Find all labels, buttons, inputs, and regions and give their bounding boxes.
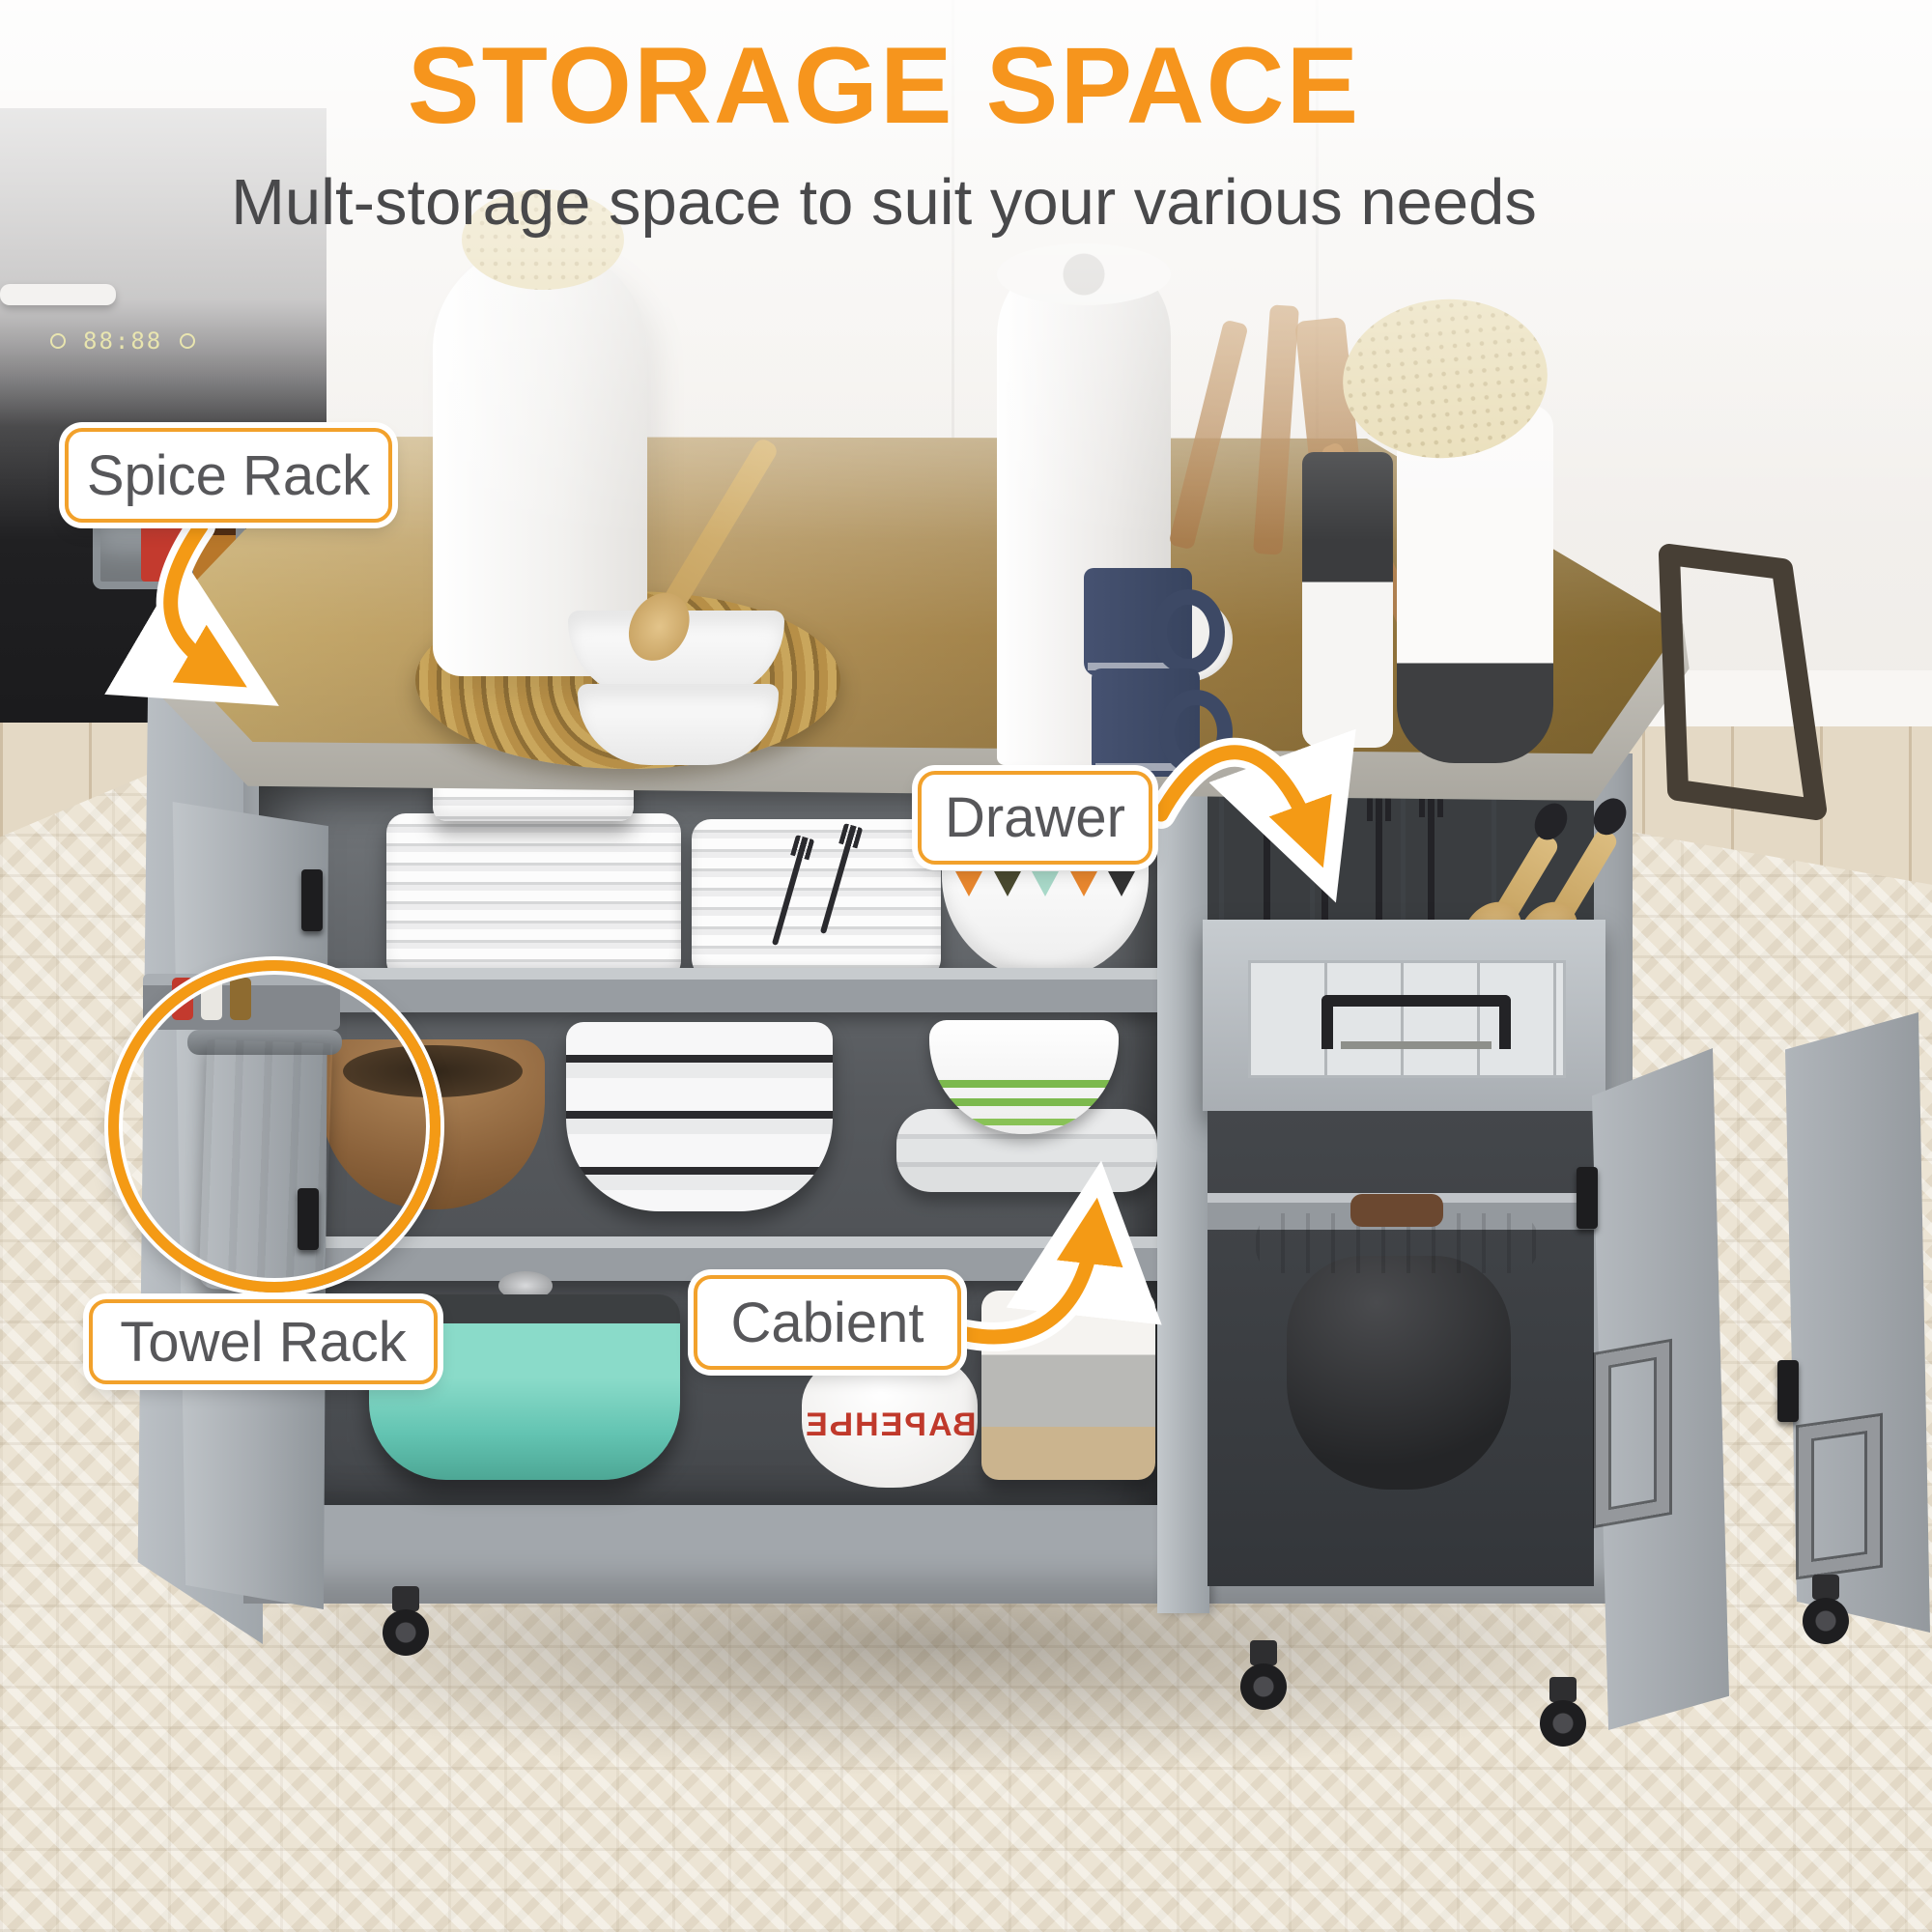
navy-mug [1084, 568, 1192, 676]
bowl-stack [566, 1022, 833, 1211]
page-subtitle: Mult-storage space to suit your various … [0, 165, 1768, 240]
callout-towel-rack: Towel Rack [89, 1299, 438, 1384]
door-hinge [301, 869, 323, 931]
shelf-board [259, 1236, 1157, 1281]
hanging-towel [199, 1039, 333, 1293]
fork-icon [1428, 815, 1435, 923]
oven-indicator-icon [180, 333, 195, 349]
caster-wheel [379, 1586, 433, 1660]
callout-spice-rack-label: Spice Rack [87, 443, 370, 508]
callout-cabinet-label: Cabient [731, 1291, 924, 1355]
black-pot [1287, 1256, 1511, 1490]
plate-stack [386, 813, 681, 983]
oven-display: 88:88 [50, 325, 282, 357]
caster-wheel [1799, 1575, 1853, 1648]
fork-icon [1376, 819, 1382, 923]
spice-jar [172, 978, 193, 1020]
large-canister [1397, 406, 1553, 763]
oven-clock: 88:88 [83, 327, 162, 355]
product-infographic: 88:88 ВАРЕНЬЕ [0, 0, 1932, 1932]
shelf-board [259, 968, 1157, 1012]
spice-jar [201, 978, 222, 1020]
center-partition [1157, 763, 1209, 1613]
caster-wheel [1236, 1640, 1291, 1714]
oven-indicator-icon [50, 333, 66, 349]
door-handle [1596, 1342, 1669, 1524]
callout-spice-rack: Spice Rack [65, 428, 392, 523]
callout-drawer: Drawer [918, 771, 1152, 865]
utensil-crock [1302, 452, 1393, 748]
spice-jar [230, 978, 251, 1020]
door-hinge [1777, 1360, 1799, 1422]
wooden-lid-handle [1350, 1194, 1443, 1227]
fork-icon [1321, 813, 1328, 923]
jam-jar: ВАРЕНЬЕ [802, 1350, 978, 1488]
oven-handle [0, 284, 116, 305]
drawer-handle [1321, 995, 1511, 1049]
page-title: STORAGE SPACE [0, 23, 1768, 148]
storage-canister [981, 1291, 1155, 1480]
callout-towel-rack-label: Towel Rack [120, 1310, 407, 1375]
plate-stack [692, 819, 941, 981]
navy-mug [1092, 668, 1200, 777]
caster-wheel [1536, 1677, 1590, 1750]
callout-drawer-label: Drawer [945, 785, 1125, 850]
callout-cabinet: Cabient [694, 1275, 961, 1370]
fork-icon [1264, 819, 1270, 923]
heading-block: STORAGE SPACE Mult-storage space to suit… [0, 23, 1768, 240]
jar-label-text: ВАРЕНЬЕ [804, 1406, 976, 1444]
door-handle [1799, 1416, 1880, 1577]
door-hinge [1577, 1167, 1598, 1229]
